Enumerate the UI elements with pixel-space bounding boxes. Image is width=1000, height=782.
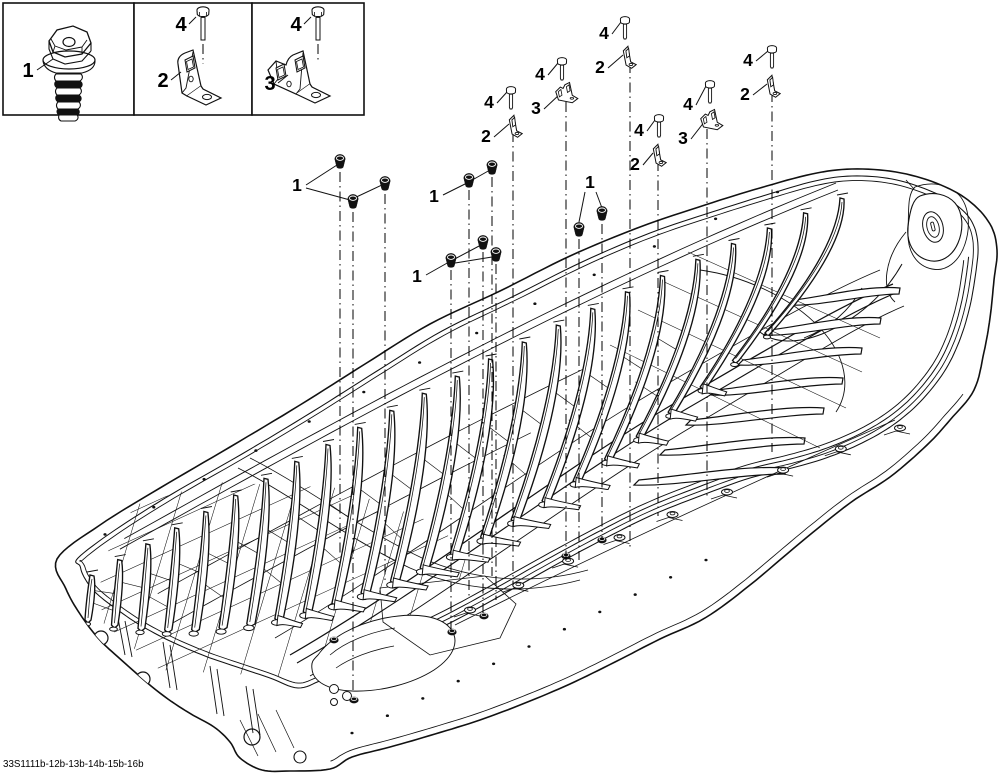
svg-text:3: 3 <box>264 73 275 95</box>
svg-text:3: 3 <box>531 98 541 118</box>
svg-text:4: 4 <box>290 14 302 36</box>
svg-text:33S1111b-12b-13b-14b-15b-16b: 33S1111b-12b-13b-14b-15b-16b <box>3 759 144 770</box>
svg-text:1: 1 <box>22 60 33 82</box>
svg-text:2: 2 <box>740 84 750 104</box>
svg-text:1: 1 <box>585 172 595 192</box>
svg-text:2: 2 <box>157 70 168 92</box>
svg-text:4: 4 <box>683 94 693 114</box>
svg-text:1: 1 <box>429 186 439 206</box>
svg-text:2: 2 <box>595 57 605 77</box>
svg-text:1: 1 <box>292 175 302 195</box>
svg-text:2: 2 <box>481 126 491 146</box>
svg-text:3: 3 <box>678 128 688 148</box>
svg-text:4: 4 <box>535 64 545 84</box>
svg-text:4: 4 <box>599 23 609 43</box>
svg-text:4: 4 <box>634 120 644 140</box>
svg-text:4: 4 <box>175 14 187 36</box>
svg-text:4: 4 <box>743 50 753 70</box>
svg-text:1: 1 <box>412 266 422 286</box>
svg-text:2: 2 <box>630 154 640 174</box>
svg-text:4: 4 <box>484 92 494 112</box>
